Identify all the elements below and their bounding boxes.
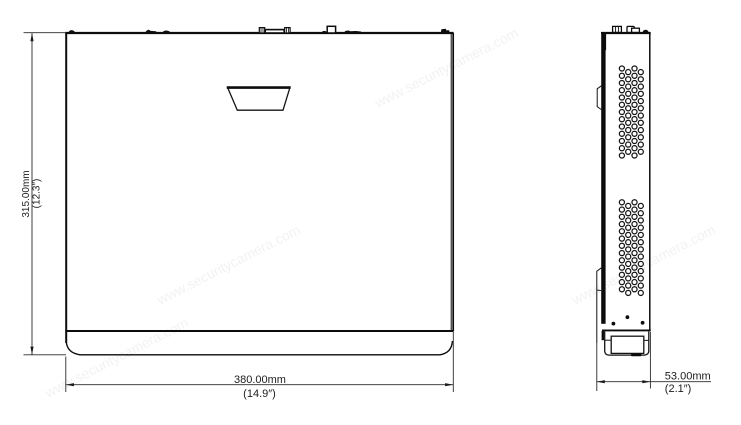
svg-text:(2.1″): (2.1″) [665,383,692,395]
svg-text:www.securitycamera.com: www.securitycamera.com [153,221,303,308]
svg-text:www.securitycamera.com: www.securitycamera.com [41,314,191,401]
svg-text:www.securitycamera.com: www.securitycamera.com [371,24,521,111]
svg-text:380.00mm: 380.00mm [234,374,286,386]
svg-text:53.00mm: 53.00mm [665,370,711,382]
svg-text:(14.9″): (14.9″) [243,388,276,400]
svg-text:(12.3″): (12.3″) [31,179,42,209]
svg-text:315.00mm: 315.00mm [21,170,32,217]
